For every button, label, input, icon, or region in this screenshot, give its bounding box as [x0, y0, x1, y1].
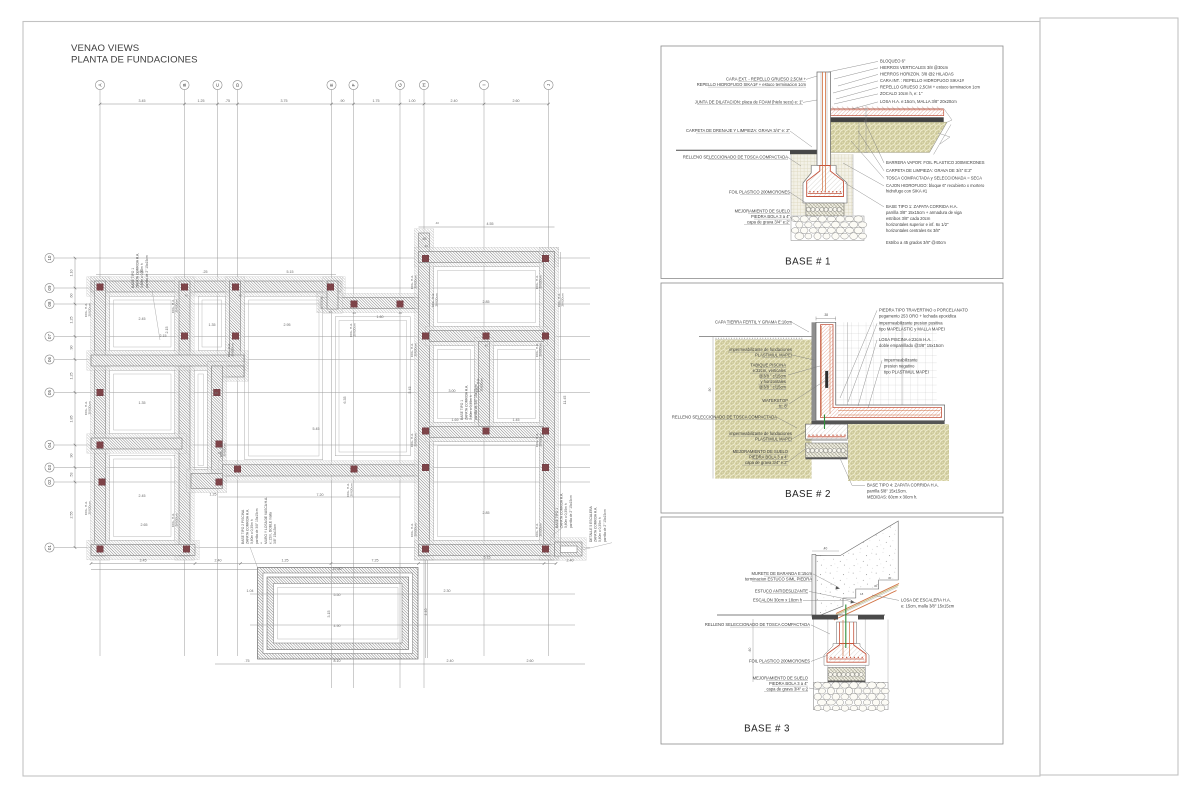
svg-text:7.25: 7.25: [372, 559, 379, 563]
svg-text:e: 15cm, malla 3/8" 15x15cm: e: 15cm, malla 3/8" 15x15cm: [901, 604, 955, 609]
svg-text:20X20cm: 20X20cm: [414, 343, 418, 356]
svg-text:1.35: 1.35: [139, 401, 146, 405]
svg-text:1.25: 1.25: [210, 493, 217, 497]
svg-text:2.85: 2.85: [483, 300, 490, 304]
svg-text:tipo PLASTIMUL MAPEI: tipo PLASTIMUL MAPEI: [884, 370, 929, 375]
svg-text:D: D: [235, 83, 241, 87]
svg-text:MURO Y LOSA DE VASCA H.A.: MURO Y LOSA DE VASCA H.A.: [264, 497, 268, 544]
svg-text:terminacion ESTUCO SIML PIEDRA: terminacion ESTUCO SIML PIEDRA: [745, 577, 812, 582]
svg-text:capa de grava 3/4" e:2: capa de grava 3/4" e:2: [766, 687, 808, 692]
svg-text:20X20cm: 20X20cm: [414, 275, 418, 288]
svg-text:10: 10: [47, 255, 52, 260]
svg-text:.40: .40: [328, 310, 332, 314]
svg-text:BARRERA VAPOR: FOIL PLASTICO 2: BARRERA VAPOR: FOIL PLASTICO 200MICRONES: [886, 160, 985, 165]
svg-text:1.25: 1.25: [198, 99, 205, 103]
svg-text:MEJORAMIENTO DE SUELO: MEJORAMIENTO DE SUELO: [733, 449, 789, 454]
svg-text:.25: .25: [203, 270, 208, 274]
svg-text:HIERROS VERTICALES 3/8 @30cm: HIERROS VERTICALES 3/8 @30cm: [880, 65, 949, 70]
svg-text:I: I: [482, 84, 488, 85]
svg-text:CAJON HIDROFUGO: bloque 6" rec: CAJON HIDROFUGO: bloque 6" recubierto x …: [886, 183, 985, 188]
svg-text:.90: .90: [708, 388, 712, 393]
svg-text:.38: .38: [824, 313, 829, 317]
svg-text:5.15: 5.15: [287, 270, 294, 274]
svg-text:1.00: 1.00: [409, 99, 416, 103]
svg-text:parrilla de 2" 15x15cm: parrilla de 2" 15x15cm: [569, 495, 573, 528]
svg-text:e: 22m, DOBLE malla: e: 22m, DOBLE malla: [269, 512, 273, 544]
svg-text:PIEDRA BOLA 3 a 4": PIEDRA BOLA 3 a 4": [749, 455, 789, 460]
svg-text:parrilla de 2" 15x15cm: parrilla de 2" 15x15cm: [603, 509, 607, 542]
svg-text:JUNTA DE DILATACION: placa de: JUNTA DE DILATACION: placa de FOAM (hiel…: [695, 100, 804, 105]
svg-text:G: G: [398, 83, 404, 87]
svg-text:VENAO VIEWS: VENAO VIEWS: [71, 43, 139, 54]
svg-text:30: 30: [888, 576, 892, 580]
svg-text:2.15: 2.15: [165, 327, 169, 334]
svg-text:20X20cm: 20X20cm: [414, 523, 418, 536]
svg-text:DETALLE 5 ESCALERA: DETALLE 5 ESCALERA: [589, 506, 593, 542]
svg-text:PIEDRA BOLA 3 a 4": PIEDRA BOLA 3 a 4": [769, 681, 809, 686]
svg-text:20X20cm: 20X20cm: [88, 501, 92, 514]
svg-text:.40: .40: [214, 391, 218, 395]
svg-text:20X20cm: 20X20cm: [539, 343, 543, 356]
svg-text:7.20: 7.20: [317, 493, 324, 497]
svg-text:.40: .40: [484, 344, 488, 348]
svg-text:5.50: 5.50: [334, 593, 341, 597]
svg-text:3.00: 3.00: [449, 389, 456, 393]
svg-text:.75: .75: [245, 659, 250, 663]
svg-text:FOIL PLASTICO 200MICRONES: FOIL PLASTICO 200MICRONES: [729, 190, 790, 195]
svg-text:20X20cm: 20X20cm: [353, 323, 357, 336]
svg-text:1.25: 1.25: [282, 559, 289, 563]
svg-text:4.55: 4.55: [487, 222, 494, 226]
svg-text:REPELLO GRUESO 2,5CM + estuco: REPELLO GRUESO 2,5CM + estuco terminacio…: [880, 85, 981, 90]
svg-text:ZAPATA CORRIDA H.A.: ZAPATA CORRIDA H.A.: [246, 509, 250, 544]
svg-text:17.50: 17.50: [333, 567, 342, 571]
svg-text:20X20cm: 20X20cm: [414, 433, 418, 446]
svg-text:.90: .90: [340, 99, 345, 103]
svg-text:30: 30: [874, 584, 878, 588]
svg-text:0,60m x 0,30m h: 0,60m x 0,30m h: [564, 503, 568, 528]
svg-text:4.90: 4.90: [334, 624, 341, 628]
svg-text:REPELLO HIDROFUGO SIKA1# + est: REPELLO HIDROFUGO SIKA1# + estuco termin…: [697, 82, 807, 87]
svg-text:20X20cm: 20X20cm: [539, 275, 543, 288]
svg-text:2.45: 2.45: [139, 317, 146, 321]
svg-text:Estribo a 45 grados 3/8" @40cm: Estribo a 45 grados 3/8" @40cm: [886, 240, 946, 245]
svg-text:.90: .90: [70, 346, 74, 351]
svg-text:2.65: 2.65: [141, 523, 148, 527]
svg-text:BASE TIPO 1: BASE TIPO 1: [460, 400, 464, 420]
svg-text:20X20cm: 20X20cm: [175, 299, 179, 312]
svg-text:estribos 3/8" cada 20cm: estribos 3/8" cada 20cm: [886, 216, 931, 221]
svg-text:impermeabilizante presion posi: impermeabilizante presion positiva: [879, 321, 943, 326]
svg-text:doble emparrillado @3/8" 15x15: doble emparrillado @3/8" 15x15cm: [879, 343, 944, 348]
svg-text:BASE # 1: BASE # 1: [785, 257, 831, 268]
svg-text:3.75: 3.75: [281, 99, 288, 103]
svg-text:BASE TIPO 1: ZAPATA CORRIDA H.: BASE TIPO 1: ZAPATA CORRIDA H.A.: [886, 204, 958, 209]
svg-text:5.45: 5.45: [408, 387, 412, 394]
svg-text:WATERSTOP: WATERSTOP: [762, 398, 788, 403]
svg-text:ESCALON 30cm x 18cm h: ESCALON 30cm x 18cm h: [753, 598, 803, 603]
svg-text:impermeabilizante: impermeabilizante: [884, 358, 918, 363]
svg-text:3.15: 3.15: [327, 611, 331, 618]
svg-text:20X20cm: 20X20cm: [480, 378, 484, 391]
svg-text:1.10: 1.10: [70, 270, 74, 277]
svg-text:.40: .40: [424, 244, 428, 248]
svg-text:20X20cm: 20X20cm: [539, 523, 543, 536]
svg-text:ZAPATA CORRIDA H.A.: ZAPATA CORRIDA H.A.: [136, 253, 140, 288]
svg-text:02: 02: [47, 479, 52, 484]
svg-text:@3/8 " c/15cm: @3/8 " c/15cm: [759, 374, 787, 379]
svg-text:RELLENO SELECCIONADO DE TOSCA: RELLENO SELECCIONADO DE TOSCA COMPACTADA: [672, 415, 777, 420]
svg-text:1.69: 1.69: [452, 418, 459, 422]
svg-text:PLASTIMUL MAPEI: PLASTIMUL MAPEI: [755, 437, 792, 442]
svg-text:H: H: [422, 83, 428, 87]
svg-text:.90: .90: [70, 454, 74, 459]
svg-text:1.25: 1.25: [70, 373, 74, 380]
svg-text:08: 08: [47, 301, 52, 306]
svg-text:2.30: 2.30: [444, 589, 451, 593]
svg-text:20X20cm: 20X20cm: [435, 293, 439, 306]
svg-text:parrilla de 2" 15x15cm: parrilla de 2" 15x15cm: [145, 255, 149, 288]
svg-text:.60: .60: [748, 648, 752, 653]
svg-text:LOSA DE ESCALERA H.A.: LOSA DE ESCALERA H.A.: [901, 598, 951, 603]
svg-text:.40: .40: [352, 311, 356, 315]
svg-text:MURETE DE BARANDA E:15cm: MURETE DE BARANDA E:15cm: [751, 571, 812, 576]
svg-text:3.45: 3.45: [139, 99, 146, 103]
svg-text:PIEDRA BOLA 3 a 4": PIEDRA BOLA 3 a 4": [751, 214, 791, 219]
svg-text:PLANTA DE FUNDACIONES: PLANTA DE FUNDACIONES: [71, 55, 198, 66]
svg-text:1.75: 1.75: [373, 99, 380, 103]
svg-text:E: E: [329, 83, 335, 86]
svg-text:TOSCA COMPACTADA y SELECCIONAD: TOSCA COMPACTADA y SELECCIONADA = SECA: [886, 176, 982, 181]
svg-text:0,60m x 0,30m h: 0,60m x 0,30m h: [598, 517, 602, 542]
svg-text:2.60: 2.60: [513, 99, 520, 103]
svg-text:HIERROS HORIZON. 3/8 @2 HILADA: HIERROS HORIZON. 3/8 @2 HILADAS: [880, 72, 954, 77]
svg-text:8.10: 8.10: [334, 659, 341, 663]
svg-text:5.45: 5.45: [313, 427, 320, 431]
svg-text:BASE TIPO 1: BASE TIPO 1: [555, 508, 559, 528]
svg-text:@3/8 " c/15cm: @3/8 " c/15cm: [759, 385, 787, 390]
svg-text:capa de grava 3/4" e:2": capa de grava 3/4" e:2": [745, 460, 789, 465]
svg-text:09: 09: [47, 285, 52, 290]
svg-text:.40: .40: [435, 221, 439, 225]
svg-text:20X20cm: 20X20cm: [223, 443, 227, 456]
svg-text:07: 07: [47, 334, 52, 339]
svg-text:2.60: 2.60: [527, 659, 534, 663]
svg-text:2.40: 2.40: [215, 559, 222, 563]
svg-text:05: 05: [47, 390, 52, 395]
svg-text:06: 06: [47, 357, 52, 362]
svg-text:MEDIDAS: 60cm x 30cm h.: MEDIDAS: 60cm x 30cm h.: [867, 495, 917, 500]
svg-text:6.35: 6.35: [343, 397, 347, 404]
svg-text:B: B: [182, 83, 188, 86]
svg-text:.53: .53: [70, 473, 74, 478]
svg-text:BASE TIPO 1: BASE TIPO 1: [131, 268, 135, 288]
svg-text:MEJORAMIENTO DE SUELO: MEJORAMIENTO DE SUELO: [753, 676, 809, 681]
svg-text:parrilla de 3/8" 15x15cm: parrilla de 3/8" 15x15cm: [255, 508, 259, 544]
svg-text:ZAPATA CORRIDA H.A.: ZAPATA CORRIDA H.A.: [465, 385, 469, 420]
svg-text:20X20cm: 20X20cm: [350, 483, 354, 496]
svg-text:20X20cm: 20X20cm: [561, 293, 565, 306]
svg-text:ZAPATA CORRIDA H.A.: ZAPATA CORRIDA H.A.: [594, 507, 598, 542]
svg-text:.40: .40: [422, 237, 427, 241]
svg-text:20X20cm: 20X20cm: [175, 513, 179, 526]
svg-text:0,60m x 0,30m h: 0,60m x 0,30m h: [250, 519, 254, 544]
svg-text:y horizontales: y horizontales: [760, 379, 786, 384]
svg-text:LOSA PISCINA e:22cm H.A.: LOSA PISCINA e:22cm H.A.: [879, 337, 931, 342]
svg-text:LOSA H.A. e:15cm, MALLA 3/8" 2: LOSA H.A. e:15cm, MALLA 3/8" 20x20cm: [880, 99, 957, 104]
svg-text:2.40: 2.40: [567, 559, 574, 563]
svg-text:2.85: 2.85: [483, 511, 490, 515]
svg-text:2.55: 2.55: [70, 512, 74, 519]
svg-text:11.45: 11.45: [563, 396, 567, 405]
svg-text:RELLENO SELECCIONADO DE TOSCA: RELLENO SELECCIONADO DE TOSCA COMPACTADA: [705, 622, 810, 627]
svg-text:0,60m x 0,30m h: 0,60m x 0,30m h: [140, 263, 144, 288]
svg-text:18: 18: [860, 592, 864, 596]
svg-text:C: C: [215, 83, 221, 87]
svg-text:BASE # 2: BASE # 2: [785, 489, 831, 500]
svg-text:1.35: 1.35: [209, 323, 216, 327]
svg-text:2.95: 2.95: [284, 323, 291, 327]
svg-text:ZAPATA CORRIDA H.A.: ZAPATA CORRIDA H.A.: [560, 493, 564, 528]
svg-text:horizontales centrales 6x 3/8": horizontales centrales 6x 3/8": [886, 228, 941, 233]
svg-text:ESTUCO ANTIDESLIZANTE: ESTUCO ANTIDESLIZANTE: [755, 589, 808, 594]
svg-text:CAPA TIERRA FERTIL Y GRAMA E:1: CAPA TIERRA FERTIL Y GRAMA E:10cm: [715, 320, 793, 325]
svg-text:impermeabilizante de fundacion: impermeabilizante de fundaciones: [729, 431, 792, 436]
svg-text:2.45: 2.45: [139, 494, 146, 498]
svg-text:.40: .40: [398, 311, 402, 315]
svg-text:5.15: 5.15: [484, 556, 491, 560]
svg-text:hidrofugo con SIKA #1: hidrofugo con SIKA #1: [886, 189, 928, 194]
svg-text:FOIL PLASTICO 200MICRONES: FOIL PLASTICO 200MICRONES: [749, 659, 810, 664]
svg-text:parrilla 3/8" 15x15cm + armadu: parrilla 3/8" 15x15cm + armadura de viga: [886, 210, 962, 215]
svg-text:PLASTIMUL MAPEI: PLASTIMUL MAPEI: [755, 353, 792, 358]
svg-text:RELLENO SELECCIONADO DE TOSCA: RELLENO SELECCIONADO DE TOSCA COMPACTADA: [683, 155, 788, 160]
svg-text:CARA INT. : REPELLO HIDROFUGO: CARA INT. : REPELLO HIDROFUGO SIKA1#: [880, 78, 965, 83]
svg-text:20X20cm: 20X20cm: [231, 343, 235, 356]
svg-text:.40: .40: [184, 294, 188, 298]
svg-text:PIEDRA TIPO TRAVERTINO o PORCE: PIEDRA TIPO TRAVERTINO o PORCELANATO: [879, 308, 969, 313]
svg-text:CARPETA DE LIMPIEZA: GRAVA DE: CARPETA DE LIMPIEZA: GRAVA DE 3/4" E:2": [886, 168, 973, 173]
svg-text:impermeabilizante de fundacion: impermeabilizante de fundaciones: [729, 347, 792, 352]
svg-text:1.04: 1.04: [247, 589, 254, 593]
svg-text:BLOQUEO 6": BLOQUEO 6": [880, 59, 906, 64]
svg-text:.40: .40: [238, 294, 242, 298]
svg-text:CARPETA DE DRENAJE Y LIMPIEZA:: CARPETA DE DRENAJE Y LIMPIEZA: GRAVA 3/4…: [686, 128, 791, 133]
svg-text:+: +: [259, 542, 263, 544]
svg-text:tc: 8": tc: 8": [779, 404, 789, 409]
svg-text:3/8" 15x15cm: 3/8" 15x15cm: [273, 524, 277, 544]
svg-text:presion negativo: presion negativo: [884, 364, 915, 369]
svg-text:1.85: 1.85: [70, 416, 74, 423]
svg-text:horizontales superior e inf. 6: horizontales superior e inf. 6x 1/2": [886, 222, 949, 227]
svg-text:01: 01: [47, 545, 52, 550]
svg-text:BASE TIPO 4: ZAPATA CORRIDA H.: BASE TIPO 4: ZAPATA CORRIDA H.A.: [867, 483, 939, 488]
svg-text:03: 03: [47, 465, 52, 470]
svg-text:.75: .75: [225, 99, 230, 103]
svg-text:F: F: [351, 83, 357, 86]
svg-text:tipo MAPELASTIC y MALLA MAPEI: tipo MAPELASTIC y MALLA MAPEI: [879, 327, 945, 332]
svg-text:pegamento 253 ORO + lechada ep: pegamento 253 ORO + lechada epoxidica: [879, 314, 957, 319]
svg-text:CARA EXT. - REPELLO GRUESO 2,5: CARA EXT. - REPELLO GRUESO 2,5CM +: [726, 77, 807, 82]
svg-text:20X20cm: 20X20cm: [539, 433, 543, 446]
svg-text:BASE # 3: BASE # 3: [744, 724, 790, 735]
svg-text:2.15: 2.15: [160, 334, 167, 338]
svg-text:.40: .40: [823, 546, 828, 550]
svg-text:1.45: 1.45: [513, 418, 520, 422]
svg-text:20X20cm: 20X20cm: [88, 401, 92, 414]
svg-text:0,60m x 0,30m h: 0,60m x 0,30m h: [469, 395, 473, 420]
svg-text:e:22cm, verticales: e:22cm, verticales: [753, 368, 786, 373]
svg-text:ZOCALO 10cm h, e: 1": ZOCALO 10cm h, e: 1": [880, 91, 923, 96]
svg-text:parrilla de 3/8" 15x15cm: parrilla de 3/8" 15x15cm: [474, 384, 478, 420]
svg-text:20X20cm: 20X20cm: [88, 303, 92, 316]
svg-text:3.45: 3.45: [140, 559, 147, 563]
svg-text:1.25: 1.25: [70, 317, 74, 324]
svg-text:.60: .60: [70, 294, 74, 299]
svg-text:BASE TIPO 2 PISCINA: BASE TIPO 2 PISCINA: [241, 509, 245, 544]
svg-text:MEJORAMIENTO DE SUELO: MEJORAMIENTO DE SUELO: [735, 209, 791, 214]
svg-text:capa de grava 3/4" e:2": capa de grava 3/4" e:2": [747, 220, 791, 225]
svg-text:2.40: 2.40: [451, 99, 458, 103]
svg-text:04: 04: [47, 442, 52, 447]
svg-text:TABIQUE PISCINA: TABIQUE PISCINA: [750, 363, 786, 368]
svg-text:1.60: 1.60: [377, 315, 384, 319]
svg-text:2.40: 2.40: [447, 659, 454, 663]
svg-text:parrilla 5/8" 15x15cm.: parrilla 5/8" 15x15cm.: [867, 489, 907, 494]
